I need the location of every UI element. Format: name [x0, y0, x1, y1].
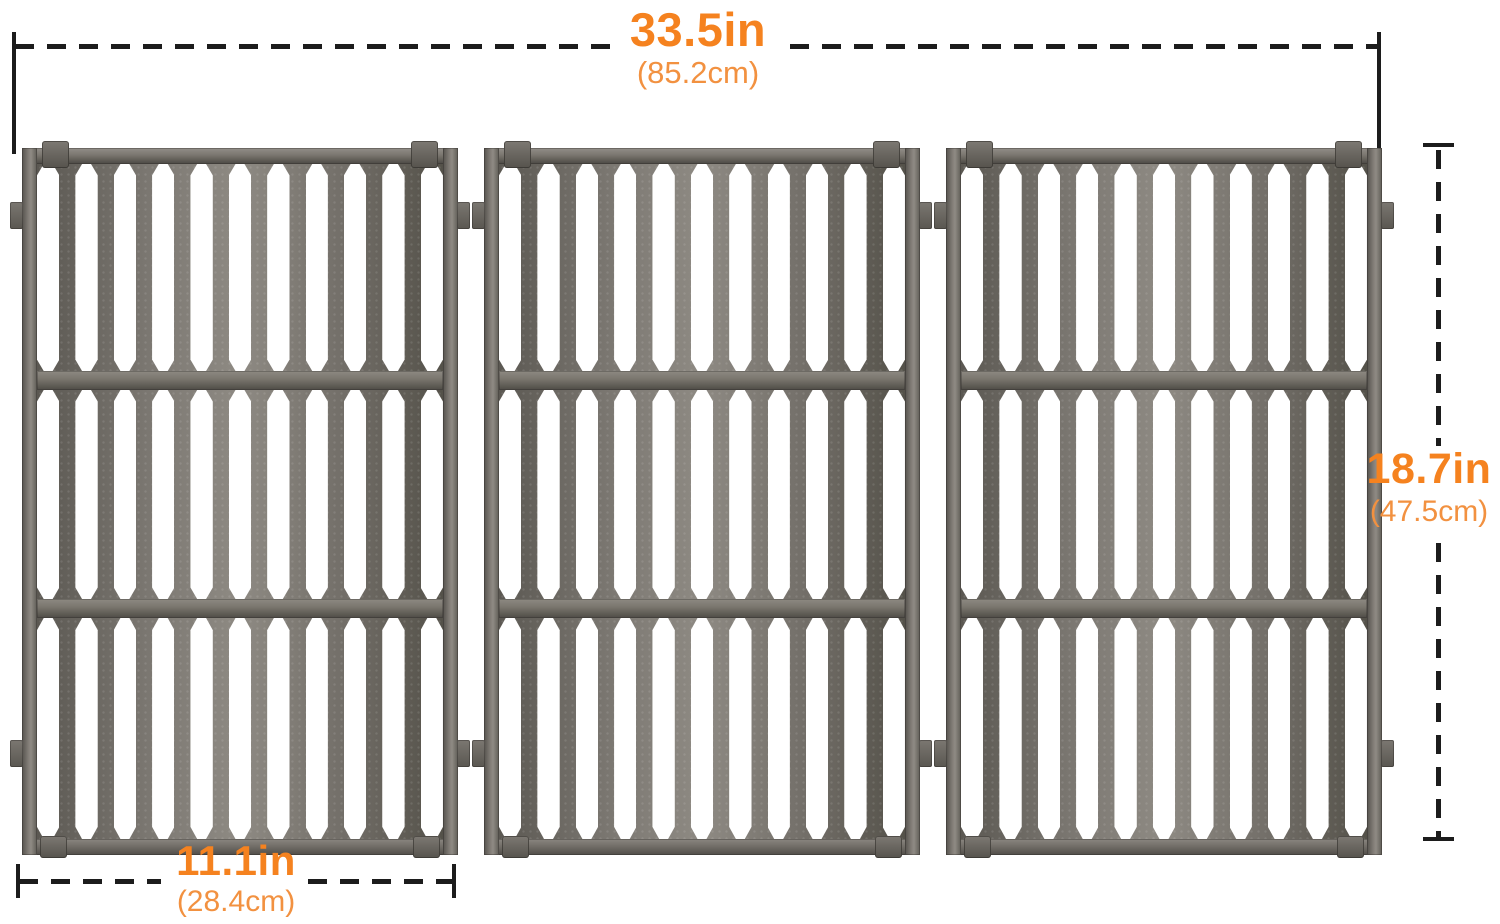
grate-slot	[961, 390, 983, 599]
grate-slot	[1076, 390, 1098, 599]
grate-slot	[1076, 618, 1098, 839]
grate-slot	[1345, 618, 1367, 839]
grate-slot	[1038, 390, 1060, 599]
grate-slot	[691, 164, 713, 371]
grate-slot	[114, 164, 136, 371]
grate-interior	[961, 164, 1367, 839]
width-dimension-line	[790, 44, 1378, 49]
grate-slot	[267, 618, 289, 839]
grate-slot	[1268, 618, 1290, 839]
grate-slot	[267, 164, 289, 371]
mounting-tab	[472, 202, 485, 229]
corner-clip	[1335, 141, 1362, 168]
grate-slot	[152, 164, 174, 371]
grate-slot	[614, 390, 636, 599]
corner-clip	[411, 141, 438, 168]
grate-slot	[229, 618, 251, 839]
grate-slot	[806, 618, 828, 839]
grate-slot	[961, 164, 983, 371]
grate-slot	[229, 164, 251, 371]
grate-slot	[652, 164, 674, 371]
grate-slot	[1230, 618, 1252, 839]
grate-slot	[729, 618, 751, 839]
grate-slot	[1191, 390, 1213, 599]
grate-slot	[652, 390, 674, 599]
grate-frame-right	[443, 148, 458, 855]
grate-slot	[152, 390, 174, 599]
panel-width-value: 11.1in	[176, 840, 296, 883]
grate-slot	[1153, 164, 1175, 371]
width-dimension-line	[15, 44, 611, 49]
grate-frame-top	[22, 148, 458, 164]
corner-clip	[873, 141, 900, 168]
mounting-tab	[1381, 740, 1394, 767]
grate-slot	[382, 618, 404, 839]
grate-slot	[190, 164, 212, 371]
mounting-tab	[457, 740, 470, 767]
grate-slot	[576, 390, 598, 599]
grate-frame-top	[946, 148, 1382, 164]
grate-slot	[1306, 390, 1328, 599]
grate-slot	[1153, 618, 1175, 839]
grate-slot	[1191, 164, 1213, 371]
grate-slot	[1306, 164, 1328, 371]
grate-slot	[883, 618, 905, 839]
grate-slot	[1230, 164, 1252, 371]
grate-slot	[499, 390, 521, 599]
mounting-tab	[10, 202, 23, 229]
grate-bar-section	[499, 164, 905, 371]
grill-grates	[22, 148, 1382, 855]
grate-slot	[344, 164, 366, 371]
grate-bar-section	[961, 618, 1367, 839]
height-dimension-line	[1436, 543, 1441, 837]
grate-slot	[576, 164, 598, 371]
grate-slot	[999, 390, 1021, 599]
grate-frame-bottom	[484, 839, 920, 855]
dimension-tick-bottom	[1423, 837, 1454, 841]
height-metric: (47.5cm)	[1367, 495, 1492, 528]
grate-frame-left	[946, 148, 961, 855]
grate-bar-section	[961, 390, 1367, 599]
grate-slot	[768, 390, 790, 599]
grate-slot	[421, 390, 443, 599]
grate-slot	[883, 164, 905, 371]
panel-width-metric: (28.4cm)	[176, 885, 296, 918]
panel-width-dimension-line	[19, 879, 161, 884]
grate-slot	[382, 164, 404, 371]
corner-clip	[502, 836, 529, 858]
grate-slot	[1114, 618, 1136, 839]
grate-crossbar	[499, 599, 905, 618]
grate-slot	[344, 618, 366, 839]
grate-slot	[37, 618, 59, 839]
mounting-tab	[10, 740, 23, 767]
grate-slot	[1191, 618, 1213, 839]
corner-clip	[42, 141, 69, 168]
grate-slot	[768, 164, 790, 371]
corner-clip	[40, 836, 67, 858]
grate-slot	[75, 618, 97, 839]
grate-panel	[946, 148, 1382, 855]
grate-slot	[75, 390, 97, 599]
grate-frame-top	[484, 148, 920, 164]
grate-frame-right	[905, 148, 920, 855]
grate-crossbar	[499, 371, 905, 390]
grate-slot	[37, 390, 59, 599]
grate-slot	[114, 618, 136, 839]
panel-width-dimension-line	[308, 879, 453, 884]
grate-panel	[22, 148, 458, 855]
dimension-tick-right	[1377, 32, 1381, 154]
dimension-tick-top	[1423, 143, 1454, 147]
grate-slot	[1038, 164, 1060, 371]
grate-slot	[691, 618, 713, 839]
grate-slot	[382, 390, 404, 599]
grate-slot	[768, 618, 790, 839]
grate-slot	[1114, 164, 1136, 371]
grate-bar-section	[499, 390, 905, 599]
grate-slot	[190, 618, 212, 839]
grate-slot	[537, 390, 559, 599]
grate-slot	[1268, 390, 1290, 599]
grate-bar-section	[499, 618, 905, 839]
grate-bar-section	[37, 164, 443, 371]
corner-clip	[504, 141, 531, 168]
height-dimension-line	[1436, 150, 1441, 446]
corner-clip	[875, 836, 902, 858]
grate-slot	[1345, 164, 1367, 371]
grate-slot	[37, 164, 59, 371]
grate-slot	[1230, 390, 1252, 599]
dimension-tick-left	[12, 32, 16, 154]
grate-slot	[267, 390, 289, 599]
mounting-tab	[1381, 202, 1394, 229]
grate-slot	[614, 618, 636, 839]
grate-slot	[421, 164, 443, 371]
grate-slot	[652, 618, 674, 839]
grate-slot	[344, 390, 366, 599]
mounting-tab	[934, 740, 947, 767]
grate-slot	[1268, 164, 1290, 371]
grate-slot	[75, 164, 97, 371]
grate-slot	[537, 164, 559, 371]
grate-slot	[999, 164, 1021, 371]
grate-slot	[421, 618, 443, 839]
grate-slot	[844, 164, 866, 371]
grate-slot	[614, 164, 636, 371]
grate-frame-bottom	[946, 839, 1382, 855]
grate-slot	[190, 390, 212, 599]
grate-slot	[999, 618, 1021, 839]
grate-slot	[729, 164, 751, 371]
grate-crossbar	[961, 371, 1367, 390]
grate-slot	[806, 390, 828, 599]
grate-crossbar	[961, 599, 1367, 618]
grate-slot	[844, 618, 866, 839]
corner-clip	[1337, 836, 1364, 858]
mounting-tab	[919, 740, 932, 767]
grate-slot	[806, 164, 828, 371]
grate-slot	[1345, 390, 1367, 599]
grate-slot	[306, 164, 328, 371]
grate-slot	[229, 390, 251, 599]
mounting-tab	[919, 202, 932, 229]
corner-clip	[413, 836, 440, 858]
grate-slot	[729, 390, 751, 599]
grate-slot	[152, 618, 174, 839]
grate-slot	[1114, 390, 1136, 599]
grate-bar-section	[37, 390, 443, 599]
width-value: 33.5in	[630, 6, 766, 54]
corner-clip	[966, 141, 993, 168]
grate-slot	[499, 164, 521, 371]
grate-slot	[499, 618, 521, 839]
mounting-tab	[457, 202, 470, 229]
product-image: 33.5in (85.2cm) 18.7in (47.5cm) 11.1in (…	[0, 0, 1500, 924]
grate-slot	[1076, 164, 1098, 371]
grate-bar-section	[961, 164, 1367, 371]
grate-slot	[691, 390, 713, 599]
grate-interior	[499, 164, 905, 839]
corner-clip	[964, 836, 991, 858]
grate-slot	[1153, 390, 1175, 599]
mounting-tab	[934, 202, 947, 229]
grate-crossbar	[37, 371, 443, 390]
grate-panel	[484, 148, 920, 855]
width-metric: (85.2cm)	[630, 56, 766, 90]
grate-slot	[114, 390, 136, 599]
grate-frame-left	[484, 148, 499, 855]
grate-interior	[37, 164, 443, 839]
grate-slot	[1038, 618, 1060, 839]
grate-slot	[844, 390, 866, 599]
grate-frame-left	[22, 148, 37, 855]
grate-slot	[306, 390, 328, 599]
height-value: 18.7in	[1367, 448, 1492, 492]
grate-crossbar	[37, 599, 443, 618]
grate-slot	[537, 618, 559, 839]
grate-bar-section	[37, 618, 443, 839]
grate-slot	[1306, 618, 1328, 839]
grate-slot	[306, 618, 328, 839]
grate-slot	[961, 618, 983, 839]
mounting-tab	[472, 740, 485, 767]
grate-slot	[576, 618, 598, 839]
grate-slot	[883, 390, 905, 599]
